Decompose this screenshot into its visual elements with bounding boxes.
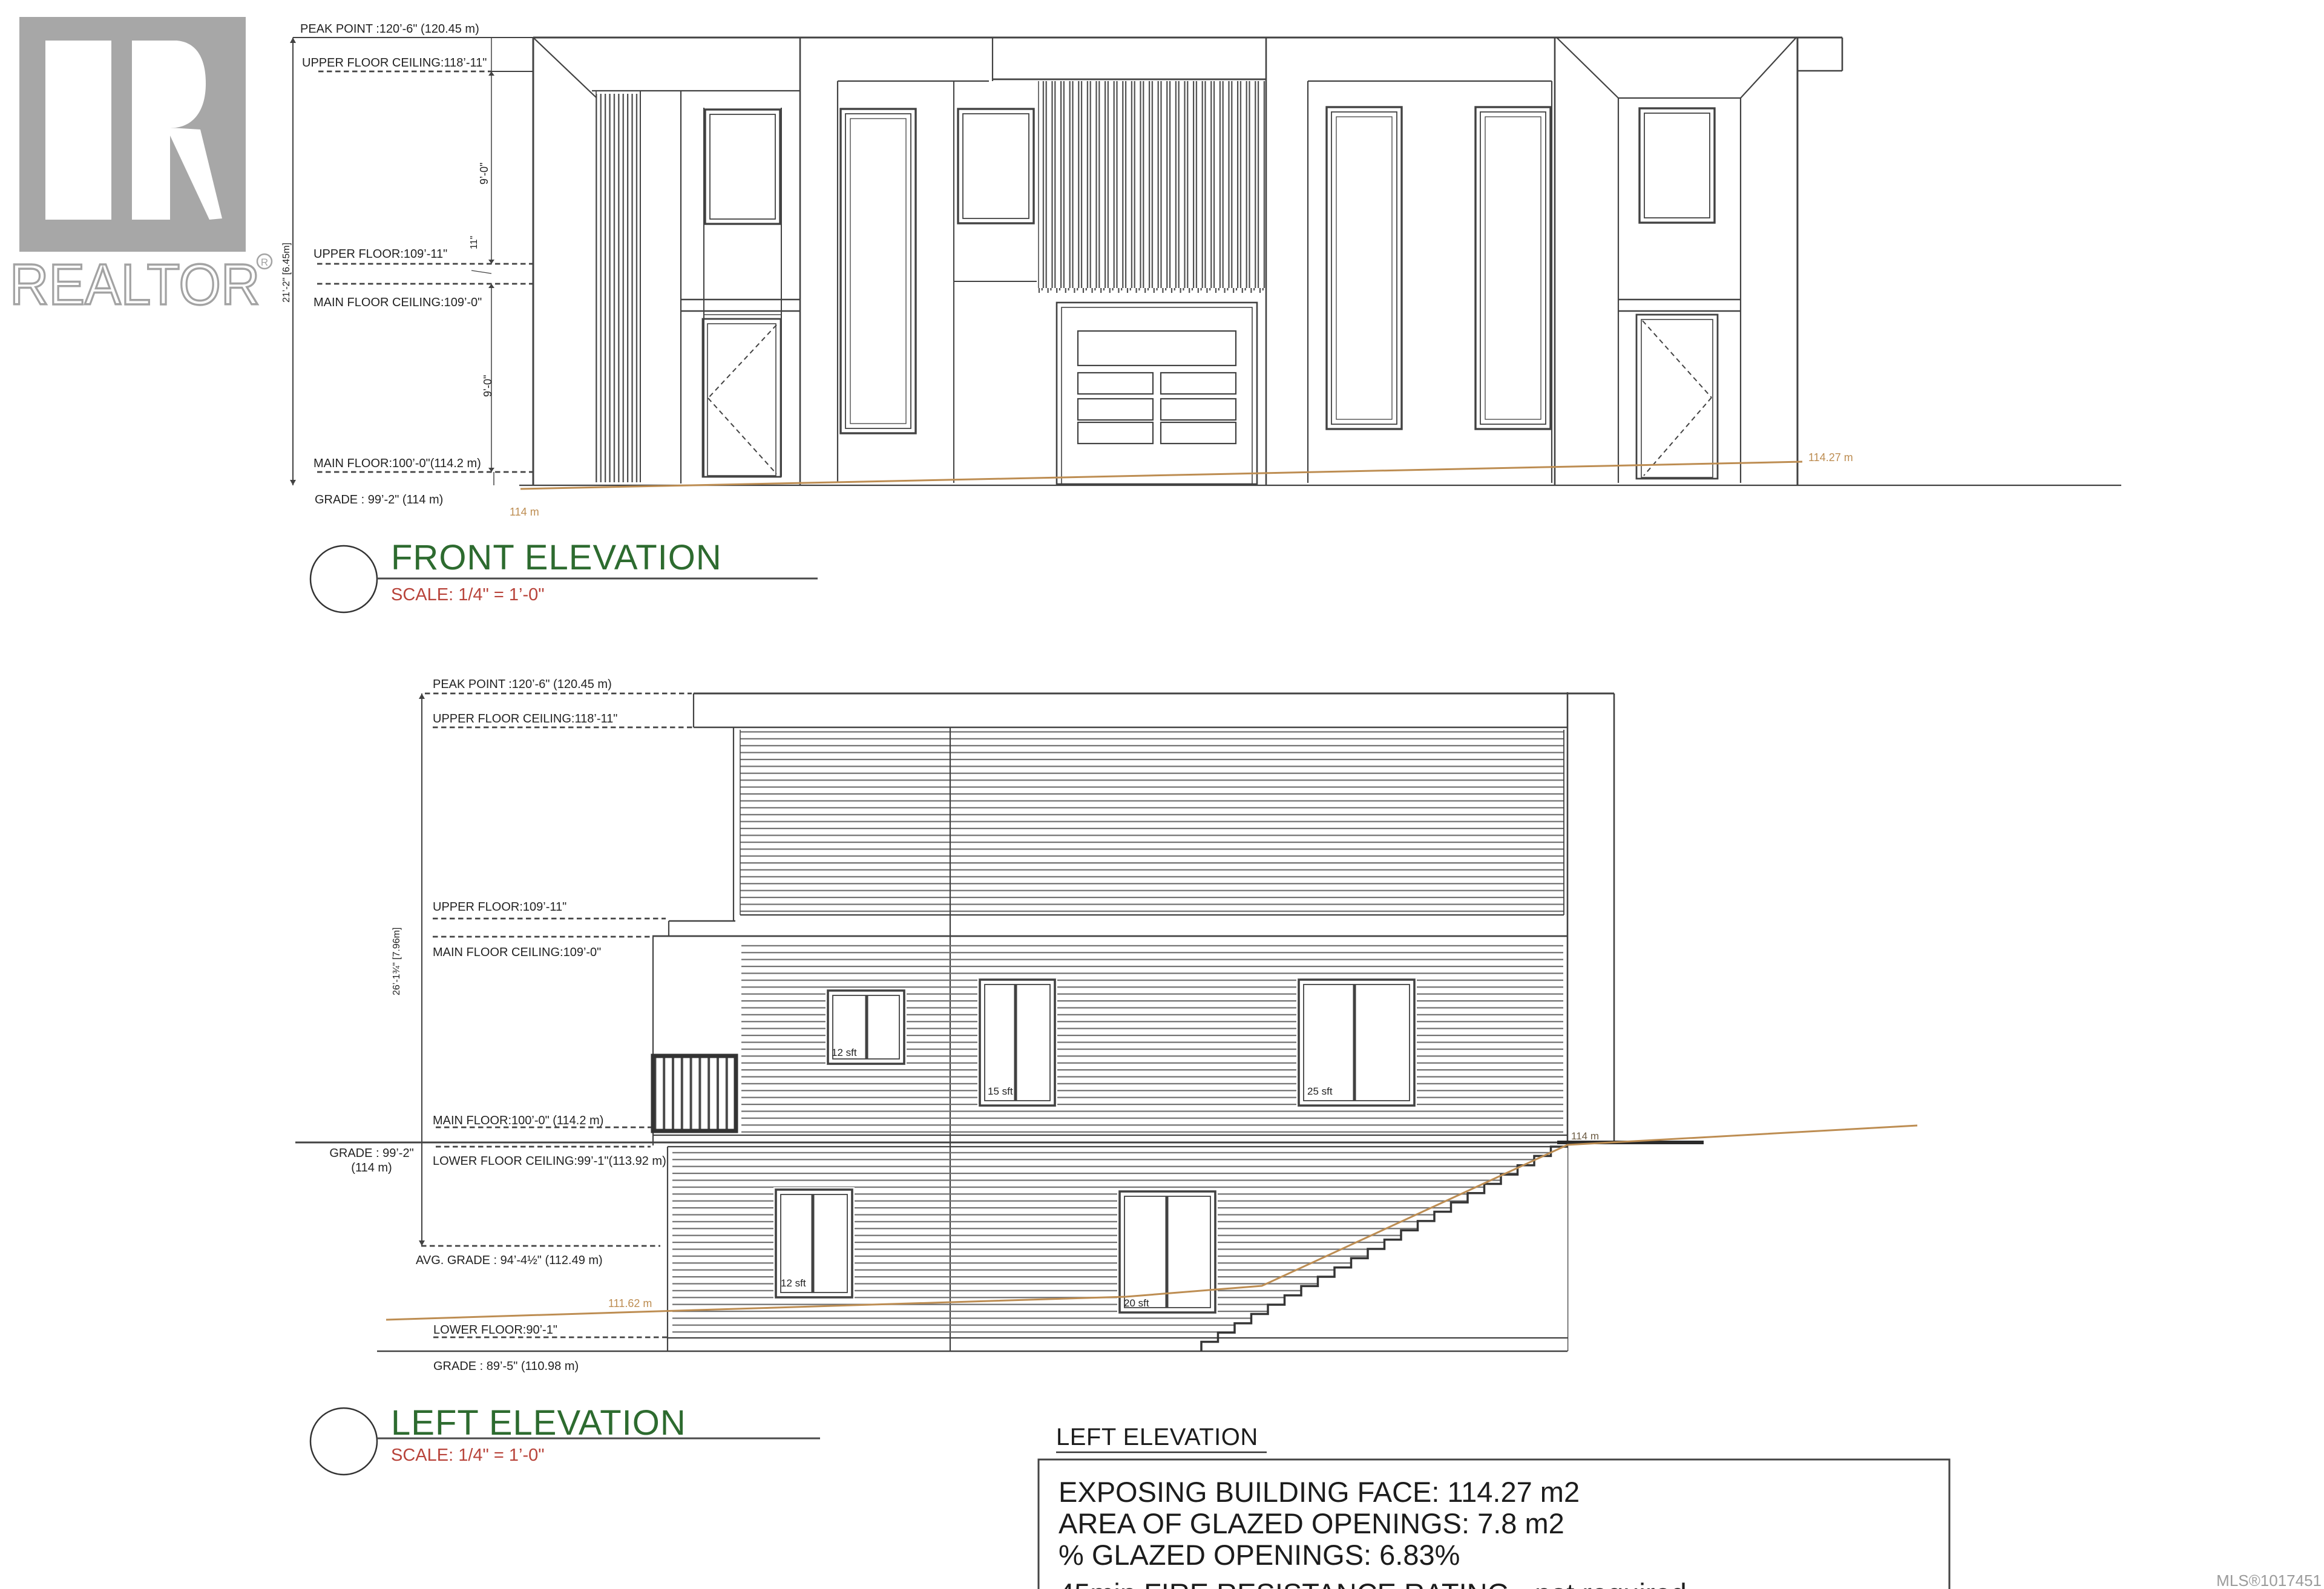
svg-text:114 m: 114 m [510,506,539,518]
svg-text:FRONT ELEVATION: FRONT ELEVATION [391,538,722,577]
svg-text:MLS®1017451: MLS®1017451 [2216,1571,2322,1589]
svg-text:EXPOSING BUILDING FACE: 114.27: EXPOSING BUILDING FACE: 114.27 m2 [1059,1476,1580,1508]
svg-text:11": 11" [469,236,479,249]
svg-text:PEAK POINT :120’-6" (120.45 m): PEAK POINT :120’-6" (120.45 m) [300,22,479,36]
svg-text:21’-2" [6.45m]: 21’-2" [6.45m] [281,243,292,303]
svg-text:UPPER FLOOR CEILING:118’-11": UPPER FLOOR CEILING:118’-11" [433,712,617,726]
svg-text:AVG. GRADE : 94’-4½" (112.49 m: AVG. GRADE : 94’-4½" (112.49 m) [416,1254,603,1267]
svg-text:AREA OF GLAZED OPENINGS: 7.8 m: AREA OF GLAZED OPENINGS: 7.8 m2 [1059,1507,1564,1539]
svg-text:UPPER FLOOR:109’-11": UPPER FLOOR:109’-11" [313,247,447,261]
svg-text:GRADE : 89’-5" (110.98 m): GRADE : 89’-5" (110.98 m) [433,1360,579,1373]
svg-text:25 sft: 25 sft [1307,1086,1333,1097]
svg-text:15 sft: 15 sft [988,1086,1013,1097]
svg-text:LOWER FLOOR:90’-1": LOWER FLOOR:90’-1" [433,1323,557,1337]
svg-text:SCALE: 1/4" = 1’-0": SCALE: 1/4" = 1’-0" [391,1446,545,1465]
svg-text:MAIN FLOOR CEILING:109’-0": MAIN FLOOR CEILING:109’-0" [313,296,482,309]
svg-text:MAIN FLOOR CEILING:109’-0": MAIN FLOOR CEILING:109’-0" [433,946,601,959]
svg-text:114 m: 114 m [1571,1130,1599,1142]
svg-text:20 sft: 20 sft [1124,1297,1149,1309]
svg-text:(114 m): (114 m) [351,1161,392,1175]
svg-text:LOWER FLOOR CEILING:99’-1"(113: LOWER FLOOR CEILING:99’-1"(113.92 m) [433,1155,666,1168]
svg-text:LEFT ELEVATION: LEFT ELEVATION [391,1403,686,1443]
svg-text:UPPER FLOOR CEILING:118’-11": UPPER FLOOR CEILING:118’-11" [302,56,487,70]
svg-text:114.27 m: 114.27 m [1808,451,1853,464]
svg-text:LEFT ELEVATION: LEFT ELEVATION [1056,1424,1258,1450]
svg-text:MAIN FLOOR:100’-0"(114.2 m): MAIN FLOOR:100’-0"(114.2 m) [313,457,481,470]
svg-text:111.62 m: 111.62 m [608,1297,652,1309]
svg-text:SCALE: 1/4" = 1’-0": SCALE: 1/4" = 1’-0" [391,585,545,604]
svg-text:26’-1¾" [7.96m]: 26’-1¾" [7.96m] [392,928,402,995]
svg-text:GRADE : 99’-2" (114 m): GRADE : 99’-2" (114 m) [315,493,443,506]
svg-text:9’-0": 9’-0" [482,375,494,397]
svg-text:% GLAZED OPENINGS: 6.83%: % GLAZED OPENINGS: 6.83% [1059,1539,1460,1571]
svg-text:12 sft: 12 sft [781,1277,806,1289]
svg-text:12 sft: 12 sft [832,1047,857,1058]
svg-text:UPPER FLOOR:109’-11": UPPER FLOOR:109’-11" [433,900,566,914]
svg-text:9’-0": 9’-0" [478,163,490,185]
svg-text:GRADE : 99’-2": GRADE : 99’-2" [329,1147,413,1160]
svg-text:MAIN FLOOR:100’-0" (114.2 m): MAIN FLOOR:100’-0" (114.2 m) [433,1114,603,1127]
svg-text:PEAK POINT :120’-6" (120.45 m): PEAK POINT :120’-6" (120.45 m) [433,678,612,691]
svg-text:45min FIRE RESISTANCE RATING -: 45min FIRE RESISTANCE RATING - not requi… [1059,1578,1687,1589]
